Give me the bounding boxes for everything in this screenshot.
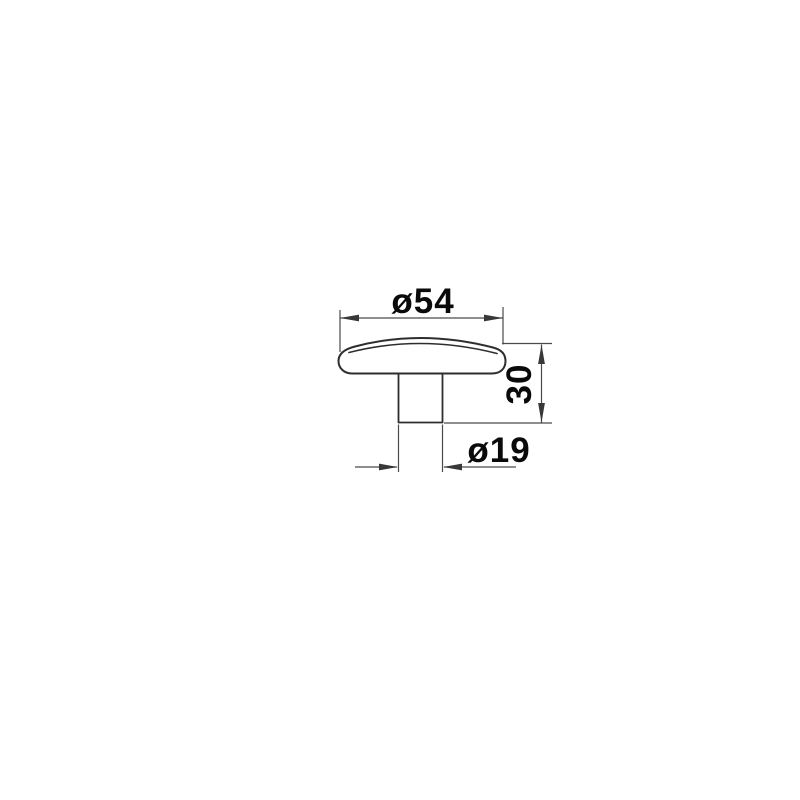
knob-stem-outline bbox=[399, 374, 443, 423]
knob-cap-top-arc bbox=[349, 343, 497, 353]
total-height-label: 30 bbox=[502, 324, 538, 444]
arrowhead-left bbox=[340, 315, 359, 322]
arrowhead-up bbox=[538, 345, 545, 365]
knob-profile bbox=[339, 338, 506, 423]
cap-diameter-label: ø54 bbox=[363, 284, 483, 320]
arrowhead-down bbox=[538, 403, 545, 423]
diagram-canvas: ø54 30 ø19 bbox=[0, 0, 800, 800]
arrowhead-right bbox=[484, 315, 503, 322]
stem-diameter-label: ø19 bbox=[439, 433, 559, 469]
arrowhead-inward-right bbox=[379, 464, 398, 471]
knob-dimension-drawing bbox=[0, 0, 800, 800]
